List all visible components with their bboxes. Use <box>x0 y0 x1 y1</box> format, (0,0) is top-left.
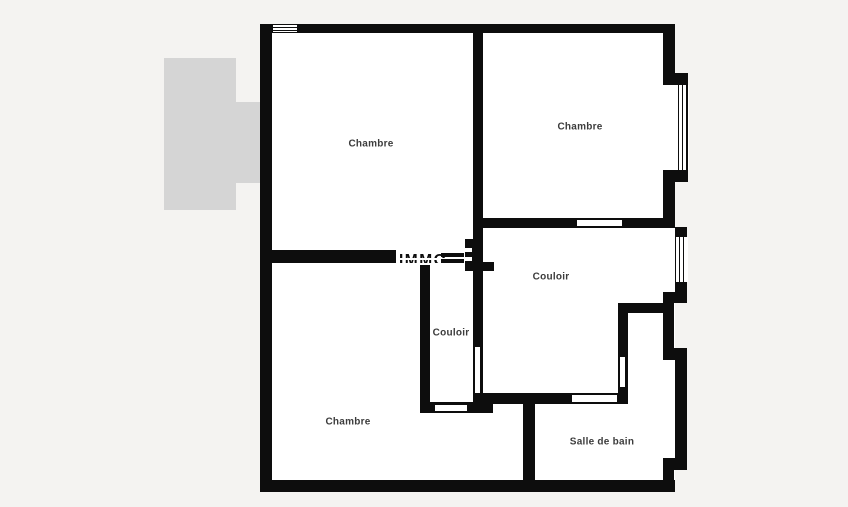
door-opening <box>577 220 622 226</box>
window-pane-line <box>273 30 297 31</box>
wall-top <box>263 24 675 33</box>
balcony-area <box>164 58 236 210</box>
room-label-chambre-bottom: Chambre <box>325 417 370 428</box>
room-label-chambre-top-left: Chambre <box>348 139 393 150</box>
watermark-block <box>465 239 483 271</box>
watermark-notch <box>465 248 472 252</box>
room-label-couloir-upper: Couloir <box>533 272 570 283</box>
window-pane-line <box>678 85 679 170</box>
room-label-couloir-lower: Couloir <box>433 328 470 339</box>
door-opening <box>620 357 626 387</box>
wall-right-step <box>663 292 685 303</box>
window-pane-line <box>686 85 688 170</box>
wall-right-step <box>663 73 688 85</box>
watermark-bar <box>441 259 464 263</box>
watermark-block <box>483 262 494 271</box>
wall-right-step <box>663 348 687 360</box>
wall-right <box>675 360 687 458</box>
wall-bathroom-left <box>523 398 535 480</box>
window-pane-line <box>679 237 680 282</box>
floor-plan: IMMO Chambre Chambre Couloir Couloir Cha… <box>0 0 848 507</box>
door-opening <box>475 347 480 393</box>
watermark-bar <box>441 253 464 257</box>
window-pane-line <box>683 237 684 282</box>
door-opening <box>572 395 617 402</box>
wall-right-step <box>663 458 687 470</box>
wall-bathroom-inner <box>618 303 628 404</box>
wall-divider-top-chambers <box>473 33 483 228</box>
wall-right-step <box>663 170 688 182</box>
wall-couloir-left-side <box>420 265 430 413</box>
balcony-area-tab <box>236 102 263 183</box>
room-label-chambre-top-right: Chambre <box>557 122 602 133</box>
wall-below-chambre-left <box>270 250 396 263</box>
window-icon <box>273 25 297 33</box>
window-pane-line <box>682 85 683 170</box>
wall-right <box>663 33 675 73</box>
watermark-text: IMMO <box>399 253 447 269</box>
wall-right <box>663 182 675 218</box>
wall-below-chambre-right <box>473 218 675 228</box>
watermark-notch <box>465 257 472 261</box>
window-pane-line <box>273 27 297 28</box>
wall-right <box>663 470 674 480</box>
door-opening <box>435 405 467 411</box>
room-label-salle-de-bain: Salle de bain <box>570 437 634 448</box>
watermark-cut <box>397 263 451 265</box>
wall-bottom <box>260 480 675 492</box>
